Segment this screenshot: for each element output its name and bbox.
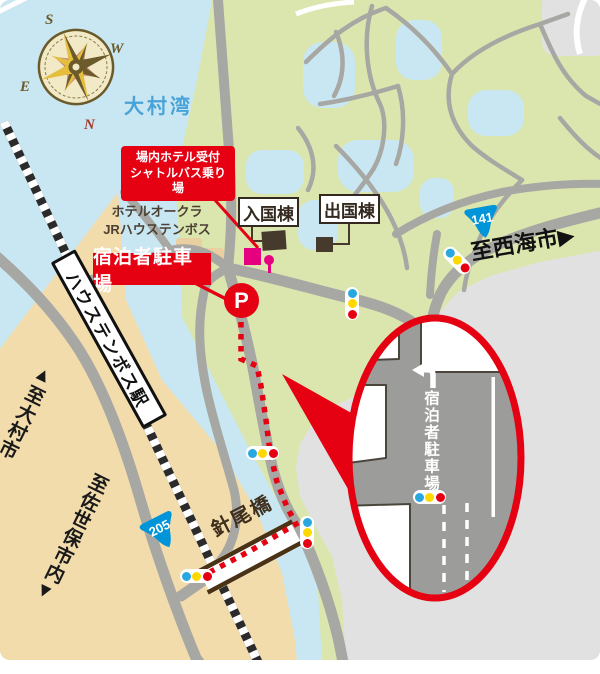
tl-yellow-light xyxy=(425,493,434,502)
tl-red-light xyxy=(348,310,357,319)
route-141-badge: 141 xyxy=(461,203,504,243)
tl-red-light xyxy=(269,449,278,458)
hotel-name-line1: ホテルオークラ xyxy=(92,203,222,221)
tl-yellow-light xyxy=(348,299,357,308)
parking-symbol: P xyxy=(224,283,259,318)
entry-building-label: 入国棟 xyxy=(238,197,299,227)
screenshot: S W E N 大村湾 ホテルオークラ JRハウステンボス 場内ホテル受付 シャ… xyxy=(0,0,600,674)
traffic-light xyxy=(180,569,213,583)
hotel-name-line2: JRハウステンボス xyxy=(92,221,222,239)
inset-edge-line xyxy=(492,377,496,517)
tl-blue-light xyxy=(348,289,357,298)
compass-south-label: S xyxy=(45,12,53,29)
tl-blue-light xyxy=(182,572,191,581)
bay-name-label: 大村湾 xyxy=(124,90,193,119)
tl-red-light xyxy=(436,493,445,502)
traffic-light xyxy=(300,516,314,549)
compass-north-label: N xyxy=(84,117,95,134)
tl-yellow-light xyxy=(303,528,312,537)
exit-building xyxy=(316,237,333,252)
tl-red-light xyxy=(303,539,312,548)
entry-building xyxy=(261,230,286,251)
inset-parking-label: 宿泊者駐車場 xyxy=(419,390,441,492)
compass-west-label: W xyxy=(110,41,123,58)
traffic-light xyxy=(246,446,279,460)
shuttle-badge-line2: シャトルバス乗り場 xyxy=(126,166,230,197)
hotel-reception-block xyxy=(244,248,261,265)
guest-parking-label: 宿泊者駐車場 xyxy=(93,253,211,285)
tl-yellow-light xyxy=(258,449,267,458)
shuttle-badge-line1: 場内ホテル受付 xyxy=(126,150,230,166)
traffic-light xyxy=(345,287,359,320)
shuttle-stop-badge: 場内ホテル受付 シャトルバス乗り場 xyxy=(121,146,235,201)
tl-blue-light xyxy=(303,518,312,527)
tl-yellow-light xyxy=(192,572,201,581)
tl-blue-light xyxy=(248,449,257,458)
traffic-light xyxy=(413,490,446,504)
access-map: S W E N 大村湾 ホテルオークラ JRハウステンボス 場内ホテル受付 シャ… xyxy=(0,0,600,660)
hotel-name-label: ホテルオークラ JRハウステンボス xyxy=(92,203,222,238)
compass-east-label: E xyxy=(20,79,30,96)
tl-blue-light xyxy=(415,493,424,502)
exit-building-label: 出国棟 xyxy=(319,194,380,224)
shuttle-stop-pin-stem xyxy=(268,264,271,273)
tl-red-light xyxy=(203,572,212,581)
